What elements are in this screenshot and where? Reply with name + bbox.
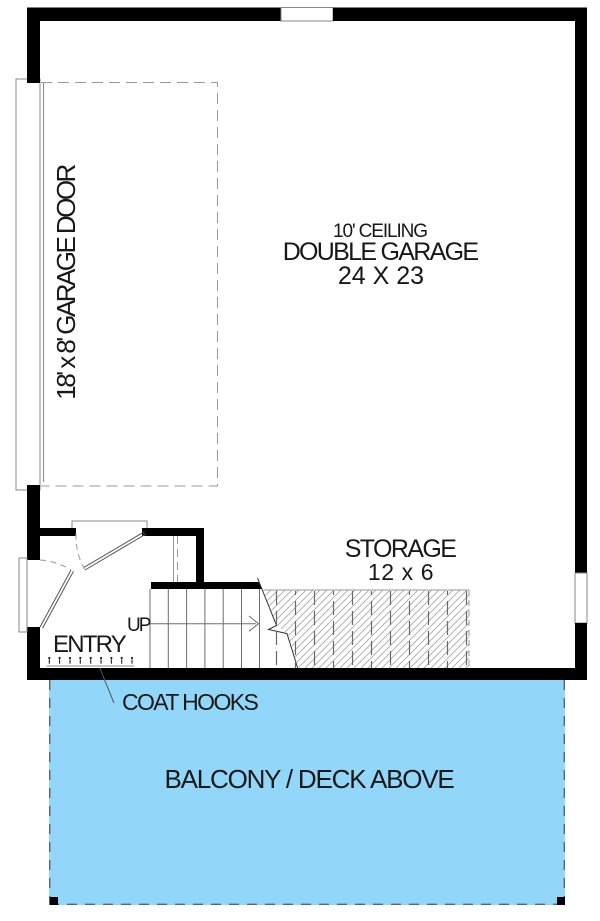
svg-text:18' x 8' GARAGE DOOR: 18' x 8' GARAGE DOOR: [51, 165, 81, 400]
svg-text:BALCONY / DECK ABOVE: BALCONY / DECK ABOVE: [164, 764, 454, 794]
svg-text:COAT HOOKS: COAT HOOKS: [122, 689, 258, 715]
svg-text:UP: UP: [127, 615, 151, 636]
svg-text:ENTRY: ENTRY: [53, 631, 127, 658]
svg-text:12 x 6: 12 x 6: [368, 559, 434, 585]
svg-text:24 X 23: 24 X 23: [338, 262, 424, 290]
